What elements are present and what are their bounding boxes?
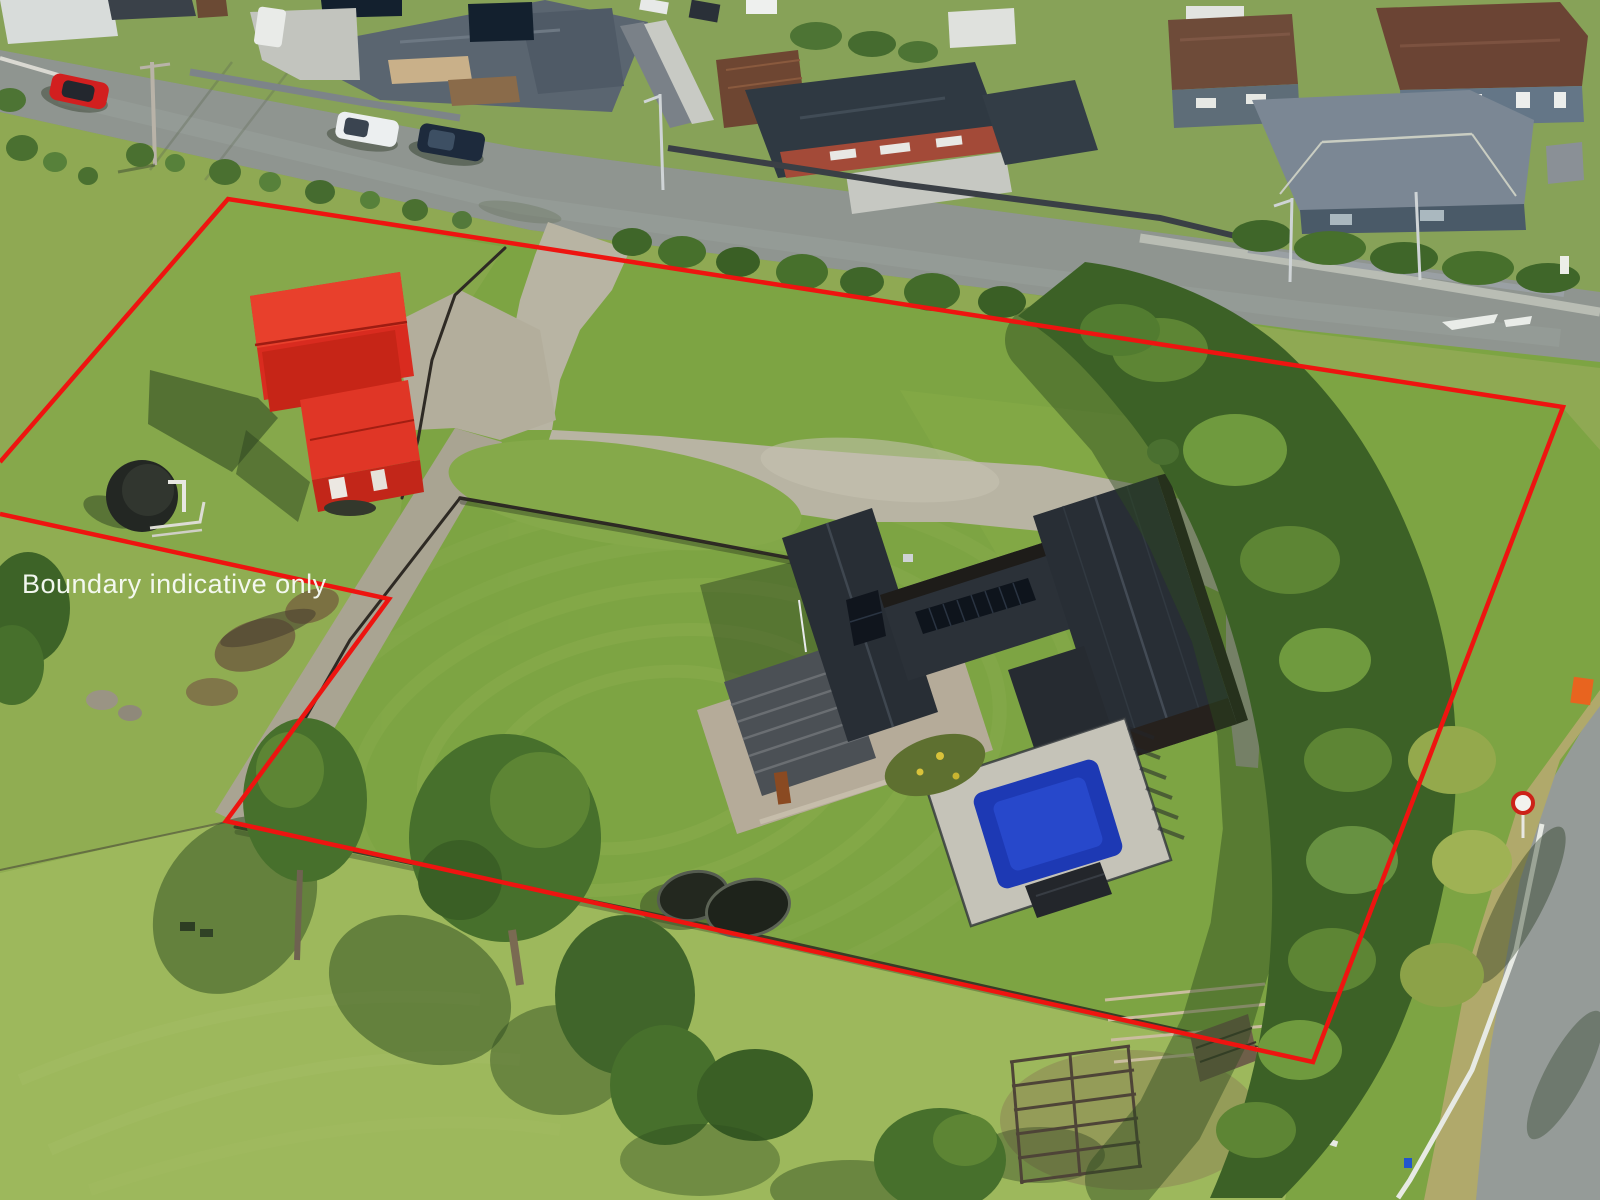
hedge — [1294, 231, 1366, 265]
small-shed — [1546, 142, 1584, 184]
hedge — [848, 31, 896, 57]
window — [1196, 98, 1216, 108]
roof-gable — [520, 8, 624, 94]
orange-marker-sign — [1570, 677, 1593, 706]
white-sign — [1560, 256, 1569, 274]
timber-deck — [448, 76, 520, 106]
flowers — [936, 752, 944, 760]
quad-bike — [324, 500, 376, 516]
boundary-label: Boundary indicative only — [22, 569, 327, 599]
hedge — [790, 22, 842, 50]
trunk — [297, 870, 300, 960]
rock — [86, 690, 118, 710]
hedge — [1370, 242, 1438, 274]
rock — [118, 705, 142, 721]
hedge — [1516, 263, 1580, 293]
hip-roof — [1252, 90, 1534, 212]
white-shed — [948, 8, 1016, 48]
white-van — [253, 6, 286, 48]
cottage-window — [328, 477, 347, 499]
tile-roof — [1168, 14, 1298, 90]
blue-marker-post — [1404, 1158, 1412, 1168]
hedge — [898, 41, 938, 63]
window — [1420, 210, 1444, 221]
flowers — [953, 773, 960, 780]
aerial-photo-canvas: Boundary indicative only — [0, 0, 1600, 1200]
aerial-photo: Boundary indicative only — [0, 0, 1600, 1200]
spa — [196, 0, 228, 18]
flowers — [917, 769, 924, 776]
window — [1330, 214, 1352, 225]
white-van — [746, 0, 777, 14]
tree-shadow — [620, 1124, 780, 1196]
canopy-highlight — [490, 752, 590, 848]
hedge — [1442, 251, 1514, 285]
chimney-vent — [903, 554, 913, 562]
canopy-highlight — [933, 1114, 997, 1166]
hedge — [1232, 220, 1292, 252]
small-tree — [1147, 439, 1179, 465]
